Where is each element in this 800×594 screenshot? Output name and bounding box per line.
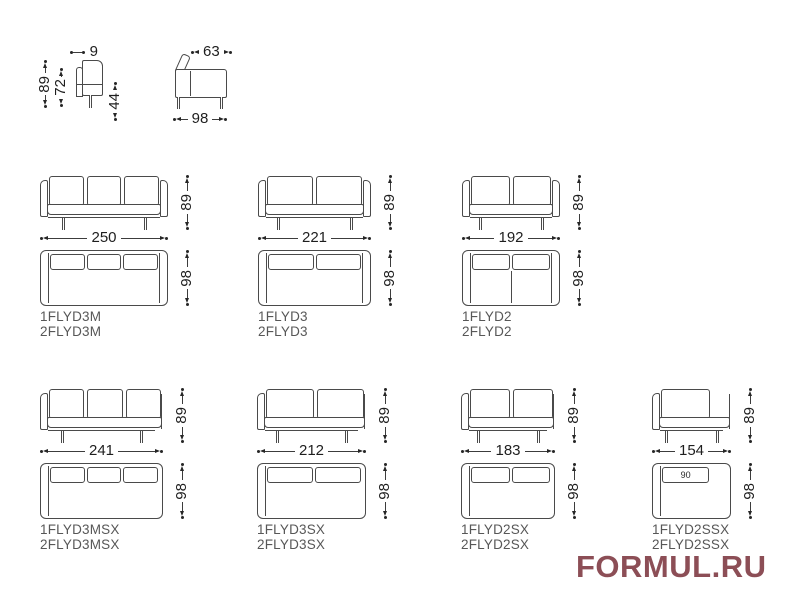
dimension-value: 89 <box>378 404 392 427</box>
front-left-leg <box>62 218 65 230</box>
dimension-value: 89 <box>175 404 189 427</box>
sofa-front-view <box>462 175 560 230</box>
top-view-left-arm-line <box>48 253 49 303</box>
seat-cushion <box>47 417 162 428</box>
dimension-value: 212 <box>295 444 328 458</box>
dimension-value: 89 <box>743 404 757 427</box>
back-cushion <box>49 389 84 419</box>
top-view-back-cushion <box>123 467 158 483</box>
dimension-value: 63 <box>199 45 224 59</box>
right-arm <box>552 180 560 217</box>
width-dimension: 192 <box>462 231 560 245</box>
sofa-front-view <box>258 175 371 230</box>
front-right-leg <box>537 431 540 443</box>
product-codes: 1FLYD3MSX 2FLYD3MSX <box>40 522 120 552</box>
back-cushion <box>317 389 365 419</box>
top-view-back-cushion <box>50 254 85 270</box>
dimension-value: 250 <box>87 231 120 245</box>
sofa-variant-group: 89 250 98 1FLYD3M 2FLYD3M <box>40 175 198 350</box>
seat-line <box>76 84 103 85</box>
leg <box>177 97 180 109</box>
depth-dimension: 98 <box>743 463 757 519</box>
back-cushion <box>49 176 84 206</box>
top-view-back-cushion <box>87 254 122 270</box>
top-view-back-cushion <box>512 467 551 483</box>
product-code-2: 2FLYD3 <box>258 324 308 339</box>
top-view-back-cushions: 90 <box>662 467 709 483</box>
dimension-value: 98 <box>180 267 194 290</box>
depth-dimension: 98 <box>383 250 397 306</box>
total-height-dimension: 89 <box>38 60 52 108</box>
back-cushion <box>126 389 161 419</box>
top-view-back-cushion <box>512 254 550 270</box>
dimension-value: 89 <box>180 191 194 214</box>
sofa-body-profile <box>175 69 227 98</box>
base-line <box>266 216 363 218</box>
sofa-front-view <box>461 388 555 443</box>
top-view-left-arm-line <box>660 466 661 516</box>
width-dimension: 241 <box>40 444 163 458</box>
top-view-back-cushion <box>267 467 313 483</box>
width-dimension: 250 <box>40 231 168 245</box>
dimension-value: 98 <box>383 267 397 290</box>
top-view-right-arm-line <box>362 253 363 303</box>
front-left-leg <box>277 218 280 230</box>
back-depth-dimension: 63 <box>191 45 224 59</box>
product-code-2: 2FLYD3MSX <box>40 537 120 552</box>
backrest-inner-line <box>190 71 191 96</box>
back-cushion <box>513 176 552 206</box>
dimension-value: 9 <box>85 45 102 59</box>
top-view-left-arm-line <box>265 466 266 516</box>
product-code-2: 2FLYD2 <box>462 324 512 339</box>
base-line <box>660 429 723 431</box>
width-dimension: 183 <box>461 444 555 458</box>
side-view-arm-section: 89 72 9 44 <box>30 42 140 122</box>
sofa-dimension-spec-sheet: 89 72 9 44 63 <box>0 0 800 594</box>
depth-dimension: 98 <box>572 250 586 306</box>
dimension-value: 221 <box>298 231 331 245</box>
back-height-dimension: 72 <box>54 68 68 107</box>
base-line <box>265 429 358 431</box>
height-dimension: 89 <box>743 388 757 443</box>
sofa-front-view <box>40 175 168 230</box>
dimension-value: 72 <box>54 76 68 99</box>
front-left-leg <box>477 431 480 443</box>
sofa-variant-group: 89 212 98 1FLYD3SX 2FLYD3SX <box>257 388 396 563</box>
sofa-variant-group: 89 154 90 98 1FLYD2SSX 2FLYD2SSX <box>652 388 761 563</box>
product-code-1: 1FLYD2 <box>462 309 512 324</box>
sofa-variant-group: 89 192 98 1FLYD2 2FLYD2 <box>462 175 590 350</box>
height-dimension: 89 <box>180 175 194 230</box>
top-view-left-arm-line <box>48 466 49 516</box>
front-right-leg <box>144 218 147 230</box>
front-left-leg <box>276 431 279 443</box>
front-right-leg <box>716 431 719 443</box>
top-view-left-arm-line <box>266 253 267 303</box>
sofa-top-view <box>40 250 168 306</box>
depth-dimension: 98 <box>180 250 194 306</box>
product-code-1: 1FLYD3M <box>40 309 101 324</box>
width-dimension: 212 <box>257 444 366 458</box>
back-cushions <box>49 176 159 206</box>
height-dimension: 89 <box>383 175 397 230</box>
arm-profile <box>76 67 83 97</box>
top-view-right-arm-line <box>159 253 160 303</box>
back-cushion <box>87 389 122 419</box>
top-view-back-cushions <box>268 254 361 270</box>
seat-cushion <box>264 417 365 428</box>
top-view-back-cushions <box>50 254 158 270</box>
total-depth-dimension: 98 <box>173 112 227 126</box>
dimension-value: 89 <box>567 404 581 427</box>
sofa-variant-group: 89 183 98 1FLYD2SX 2FLYD2SX <box>461 388 585 563</box>
product-code-1: 1FLYD2SX <box>461 522 529 537</box>
sofa-top-view: 90 <box>652 463 731 519</box>
back-cushion <box>661 389 710 419</box>
sofa-top-view <box>258 250 371 306</box>
front-left-leg <box>479 218 482 230</box>
back-cushion <box>87 176 122 206</box>
product-code-2: 2FLYD2SX <box>461 537 529 552</box>
front-right-leg <box>350 218 353 230</box>
dimension-value: 98 <box>743 480 757 503</box>
back-cushion <box>267 176 313 206</box>
sofa-top-view <box>462 250 560 306</box>
dimension-value: 98 <box>572 267 586 290</box>
depth-dimension: 98 <box>378 463 392 519</box>
front-right-leg <box>140 431 143 443</box>
dimension-value: 89 <box>572 191 586 214</box>
back-cushions <box>49 389 161 419</box>
dimension-value: 98 <box>175 480 189 503</box>
base-line <box>470 216 552 218</box>
dimension-value: 192 <box>494 231 527 245</box>
product-codes: 1FLYD3SX 2FLYD3SX <box>257 522 325 552</box>
back-cushion <box>470 389 510 419</box>
back-cushion <box>471 176 510 206</box>
top-view-back-cushion <box>316 254 362 270</box>
product-codes: 1FLYD2 2FLYD2 <box>462 309 512 339</box>
product-codes: 1FLYD2SX 2FLYD2SX <box>461 522 529 552</box>
height-dimension: 89 <box>175 388 189 443</box>
product-code-1: 1FLYD3SX <box>257 522 325 537</box>
dimension-value: 89 <box>38 73 52 96</box>
product-code-1: 1FLYD2SSX <box>652 522 729 537</box>
sofa-top-view <box>40 463 163 519</box>
seat-cushion <box>469 204 553 215</box>
leg <box>220 97 223 109</box>
product-code-2: 2FLYD3M <box>40 324 101 339</box>
width-dimension: 221 <box>258 231 371 245</box>
dimension-value: 183 <box>491 444 524 458</box>
top-view-back-cushion <box>471 467 510 483</box>
top-view-back-cushions <box>267 467 361 483</box>
product-code-1: 1FLYD3 <box>258 309 308 324</box>
back-cushion <box>513 389 553 419</box>
dimension-value: 44 <box>108 90 122 113</box>
top-view-back-cushion <box>87 467 122 483</box>
front-right-leg <box>345 431 348 443</box>
height-dimension: 89 <box>567 388 581 443</box>
top-view-back-cushion: 90 <box>662 467 709 483</box>
height-dimension: 89 <box>378 388 392 443</box>
top-view-seat-split-line <box>511 271 512 303</box>
dimension-value: 98 <box>567 480 581 503</box>
top-view-left-arm-line <box>470 253 471 303</box>
sofa-front-view <box>652 388 731 443</box>
dimension-value: 241 <box>85 444 118 458</box>
product-code-2: 2FLYD3SX <box>257 537 325 552</box>
top-view-back-cushion <box>50 467 85 483</box>
product-codes: 1FLYD2SSX 2FLYD2SSX <box>652 522 729 552</box>
depth-dimension: 98 <box>175 463 189 519</box>
back-cushions <box>266 389 364 419</box>
seat-width-dimension: 90 <box>681 470 691 480</box>
back-cushions <box>661 389 710 419</box>
seat-cushion <box>468 417 554 428</box>
width-dimension: 154 <box>652 444 731 458</box>
top-view-back-cushion <box>268 254 314 270</box>
dimension-value: 98 <box>378 480 392 503</box>
leg <box>89 95 92 108</box>
base-line <box>469 429 547 431</box>
sofa-front-view <box>257 388 366 443</box>
right-arm <box>160 180 168 217</box>
product-code-1: 1FLYD3MSX <box>40 522 120 537</box>
dimension-value: 154 <box>675 444 708 458</box>
product-codes: 1FLYD3 2FLYD3 <box>258 309 308 339</box>
back-cushion <box>316 176 362 206</box>
front-left-leg <box>61 431 64 443</box>
back-cushions <box>470 389 553 419</box>
top-view-back-cushions <box>471 467 550 483</box>
front-left-leg <box>665 431 668 443</box>
seat-height-dimension: 44 <box>108 82 122 108</box>
right-arm <box>363 180 371 217</box>
top-view-left-arm-line <box>469 466 470 516</box>
arm-width-dimension: 9 <box>70 45 102 59</box>
sofa-variant-group: 89 241 98 1FLYD3MSX 2FLYD3MSX <box>40 388 193 563</box>
sofa-top-view <box>461 463 555 519</box>
backrest-profile <box>82 60 103 96</box>
top-view-back-cushions <box>50 467 158 483</box>
top-view-back-cushion <box>315 467 361 483</box>
seat-cushion <box>659 417 730 428</box>
seat-cushion <box>47 204 161 215</box>
depth-dimension: 98 <box>567 463 581 519</box>
sofa-top-view <box>257 463 366 519</box>
product-codes: 1FLYD3M 2FLYD3M <box>40 309 101 339</box>
back-cushions <box>267 176 362 206</box>
top-view-back-cushions <box>472 254 550 270</box>
height-dimension: 89 <box>572 175 586 230</box>
top-view-back-cushion <box>472 254 510 270</box>
top-view-back-cushion <box>123 254 158 270</box>
sofa-front-view <box>40 388 163 443</box>
dimension-value: 98 <box>188 112 213 126</box>
seat-cushion <box>265 204 364 215</box>
back-cushion <box>266 389 314 419</box>
top-view-right-arm-line <box>551 253 552 303</box>
sofa-variant-group: 89 221 98 1FLYD3 2FLYD3 <box>258 175 401 350</box>
watermark: FORMUL.RU <box>576 549 766 585</box>
back-cushion <box>124 176 159 206</box>
front-right-leg <box>541 218 544 230</box>
back-cushions <box>471 176 551 206</box>
dimension-value: 89 <box>383 191 397 214</box>
side-view-profile: 63 98 <box>165 42 245 132</box>
